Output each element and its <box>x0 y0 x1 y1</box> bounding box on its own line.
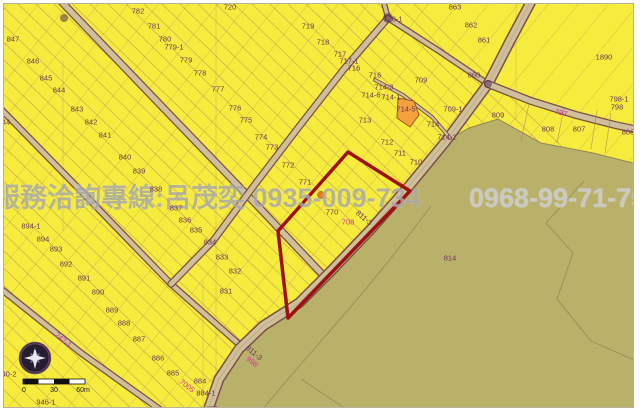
scale-bar <box>23 379 85 384</box>
map-graphics <box>3 3 634 408</box>
road-junction-marker <box>60 13 492 88</box>
map-canvas[interactable]: 服務洽詢專線:呂茂奕 0935-009-734 0968-99-71-75 N … <box>3 3 634 408</box>
parcel-marker-dot <box>318 192 325 199</box>
cadastral-map-screenshot: 服務洽詢專線:呂茂奕 0935-009-734 0968-99-71-75 N … <box>0 0 640 415</box>
compass-icon <box>20 343 50 373</box>
